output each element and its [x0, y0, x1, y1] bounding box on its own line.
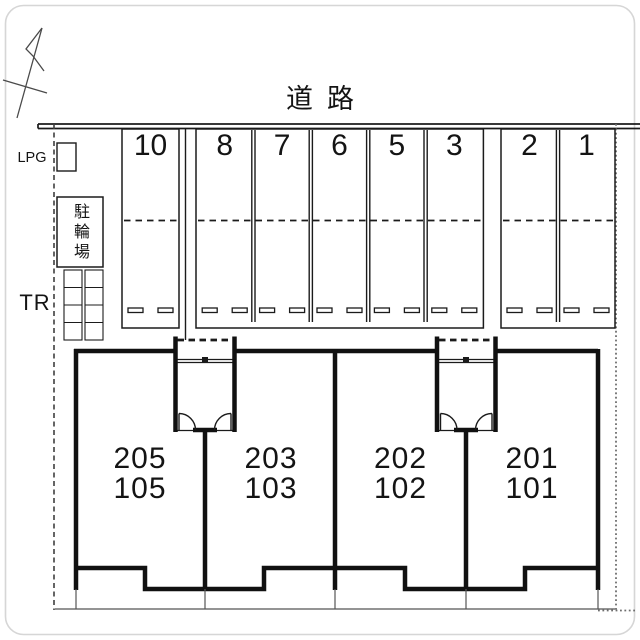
spot-number-6: 6: [312, 130, 368, 162]
unit-label-201-101: 201 101: [484, 444, 580, 504]
spot-number-3: 3: [426, 130, 482, 162]
unit-lower: 103: [223, 474, 319, 504]
entrance-1: [176, 337, 235, 433]
bicycle-parking-label: 駐輪場: [70, 202, 88, 264]
lpg-label: LPG: [12, 150, 52, 166]
unit-label-202-102: 202 102: [353, 444, 449, 504]
property-boundary-right: [598, 124, 635, 611]
trash-grid: [64, 270, 103, 340]
unit-lower: 105: [92, 474, 188, 504]
lpg-tank-box: [57, 143, 76, 171]
door-swing-icon: [179, 414, 231, 431]
spot-number-10: 10: [123, 130, 179, 162]
road-line: [38, 124, 640, 129]
wheel-stops: [128, 308, 609, 313]
door-swing-icon: [441, 414, 493, 431]
unit-upper: 203: [223, 444, 319, 474]
unit-lower: 101: [484, 474, 580, 504]
unit-lower: 102: [353, 474, 449, 504]
unit-label-203-103: 203 103: [223, 444, 319, 504]
spot-number-7: 7: [254, 130, 310, 162]
road-label: 道路: [272, 77, 382, 116]
terrace-lines: [55, 589, 615, 609]
unit-upper: 201: [484, 444, 580, 474]
spot-number-1: 1: [559, 130, 615, 162]
unit-upper: 202: [353, 444, 449, 474]
trash-label: TR: [14, 290, 56, 316]
spot-number-5: 5: [369, 130, 425, 162]
unit-label-205-105: 205 105: [92, 444, 188, 504]
north-arrow-icon: [3, 28, 47, 118]
unit-upper: 205: [92, 444, 188, 474]
spot-number-8: 8: [197, 130, 253, 162]
entrance-2: [437, 337, 496, 433]
site-plan: 道路 LPG 駐輪場 TR 10 8 7 6 5 3 2 1 205 105 2…: [0, 0, 640, 640]
spot-number-2: 2: [502, 130, 558, 162]
